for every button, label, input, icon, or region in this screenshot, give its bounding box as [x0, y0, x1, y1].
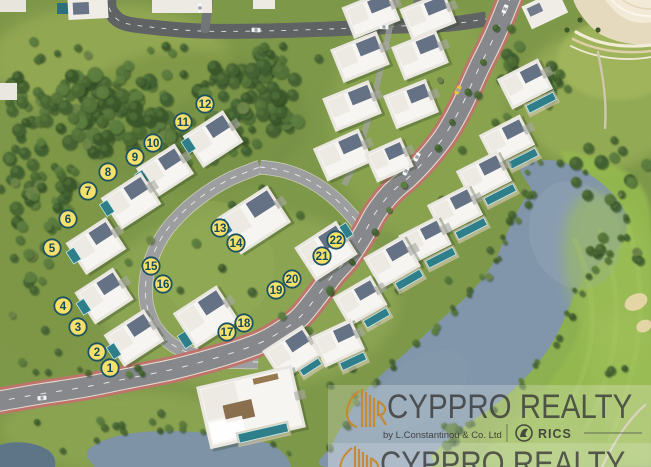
svg-text:9: 9	[132, 152, 138, 164]
svg-text:5: 5	[49, 243, 56, 255]
svg-text:2: 2	[94, 347, 100, 359]
svg-text:12: 12	[199, 99, 212, 111]
svg-text:16: 16	[157, 279, 170, 291]
svg-text:20: 20	[286, 274, 299, 286]
svg-text:15: 15	[145, 261, 158, 273]
svg-text:21: 21	[316, 251, 329, 263]
svg-text:22: 22	[330, 235, 343, 247]
svg-text:18: 18	[238, 318, 251, 330]
svg-text:13: 13	[214, 223, 227, 235]
svg-text:3: 3	[75, 322, 81, 334]
svg-text:CYPPRO REALTY: CYPPRO REALTY	[387, 387, 632, 425]
svg-text:8: 8	[105, 167, 112, 179]
svg-text:4: 4	[60, 301, 67, 313]
svg-text:17: 17	[221, 327, 234, 339]
svg-text:7: 7	[85, 186, 91, 198]
svg-text:19: 19	[270, 285, 283, 297]
svg-text:14: 14	[230, 238, 243, 250]
svg-text:10: 10	[147, 138, 160, 150]
svg-text:RICS: RICS	[538, 427, 572, 441]
svg-text:1: 1	[107, 363, 114, 375]
svg-text:by L.Constantinou & Co. Ltd: by L.Constantinou & Co. Ltd	[383, 430, 502, 441]
svg-text:CYPPRO REALTY: CYPPRO REALTY	[380, 444, 625, 467]
svg-text:11: 11	[177, 117, 190, 129]
svg-text:6: 6	[65, 214, 71, 226]
